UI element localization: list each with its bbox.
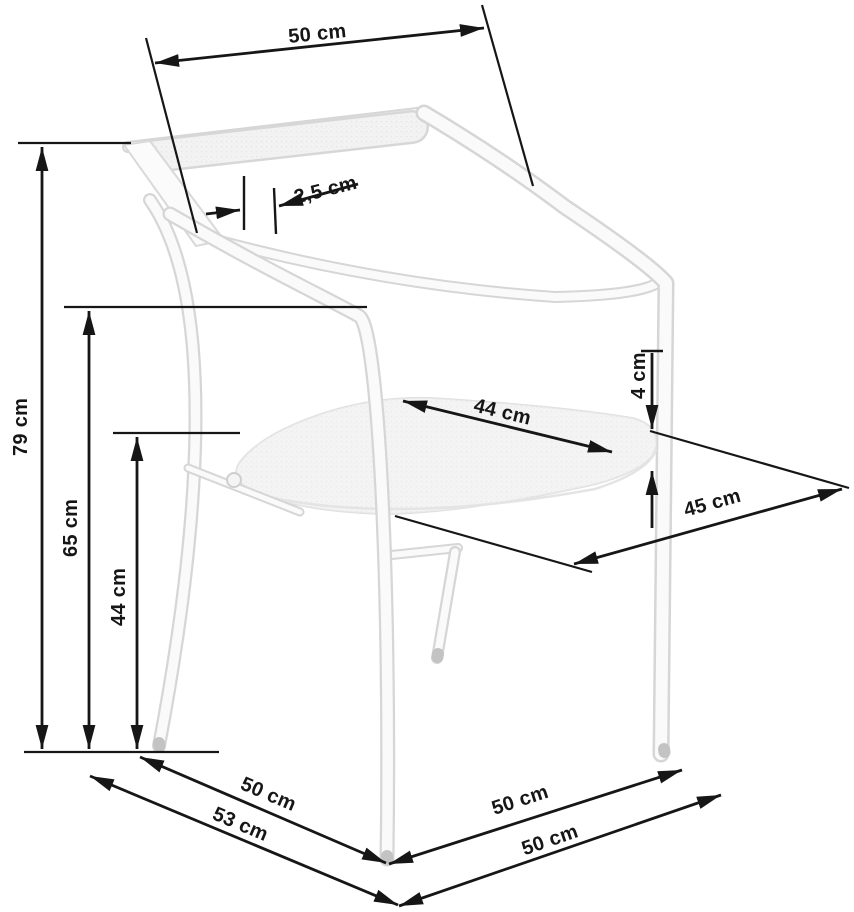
dim-backrest-bar-offset: 2,5 cm xyxy=(206,172,359,234)
chair-front-left-leg xyxy=(170,214,388,859)
chair-stretcher xyxy=(382,548,458,556)
chair-rear-right-leg xyxy=(437,552,455,658)
chair-drawing xyxy=(124,112,666,859)
dim-label-total-height: 79 cm xyxy=(10,398,32,456)
tick-line xyxy=(274,188,276,234)
dimension-arrow xyxy=(206,210,240,214)
diagram-canvas: 50 cm 2,5 cm 79 cm 65 cm 44 cm 44 cm 4 c… xyxy=(0,0,854,912)
dim-label-seat-thickness: 4 cm xyxy=(628,352,650,399)
dim-label-seat-height: 44 cm xyxy=(108,568,130,626)
extension-line xyxy=(395,516,592,572)
dim-label-base-side-depth: 50 cm xyxy=(237,773,299,816)
dim-base-front-width: 50 cm xyxy=(399,795,721,906)
extension-line xyxy=(650,431,849,488)
chair-seat-cushion xyxy=(236,398,656,514)
dim-label-armrest-height: 65 cm xyxy=(60,499,82,557)
screw-icon xyxy=(227,473,241,487)
dim-total-height: 79 cm xyxy=(10,143,131,749)
dim-label-backrest-bar-offset: 2,5 cm xyxy=(292,172,359,209)
chair-dimension-diagram: 50 cm 2,5 cm 79 cm 65 cm 44 cm 44 cm 4 c… xyxy=(0,0,854,912)
dim-armrest-height: 65 cm xyxy=(60,307,367,749)
dim-label-seat-depth: 45 cm xyxy=(681,485,743,522)
chair-backrest-pad xyxy=(154,127,412,156)
dimension-arrow xyxy=(399,795,721,906)
